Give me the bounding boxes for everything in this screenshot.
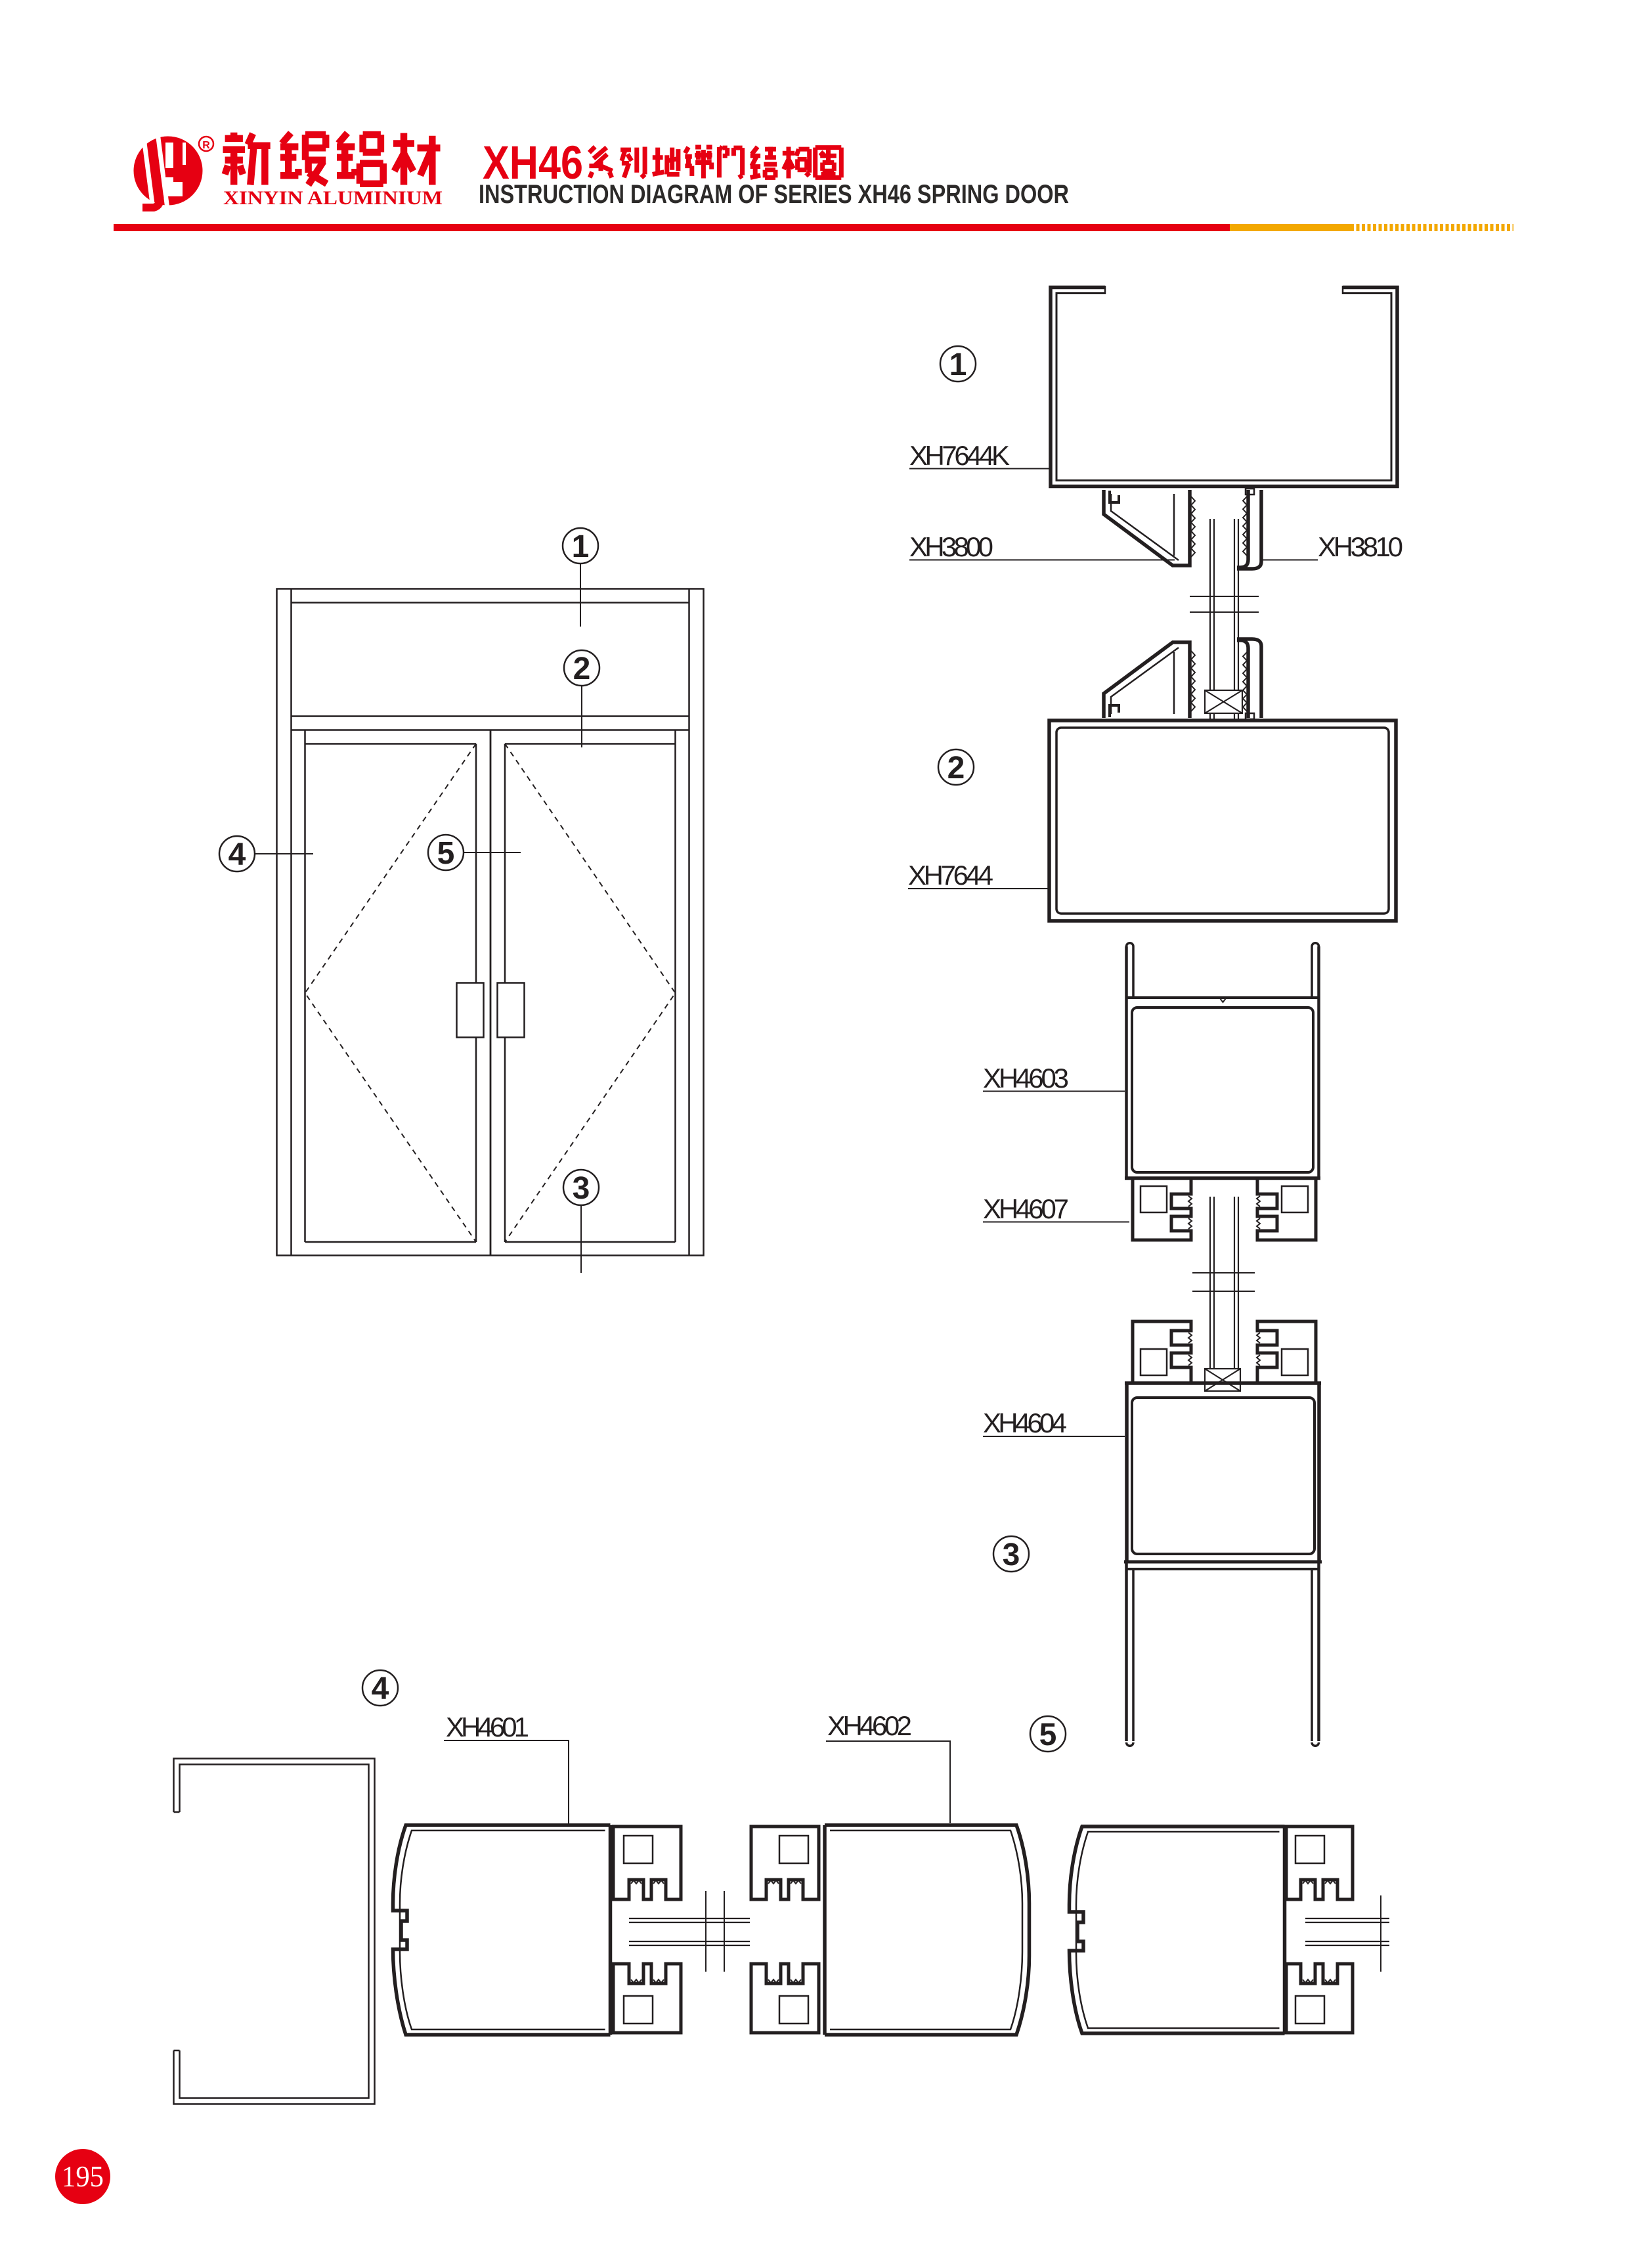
svg-text:2: 2 (573, 652, 591, 686)
svg-text:XH4601: XH4601 (446, 1712, 529, 1742)
svg-text:INSTRUCTION DIAGRAM OF SERIES: INSTRUCTION DIAGRAM OF SERIES XH46 SPRIN… (479, 180, 1069, 209)
svg-text:195: 195 (62, 2159, 104, 2193)
svg-text:XH3810: XH3810 (1318, 531, 1403, 562)
svg-text:XH3800: XH3800 (909, 531, 993, 562)
svg-text:1: 1 (572, 529, 590, 564)
svg-text:1: 1 (949, 347, 967, 382)
svg-text:3: 3 (573, 1171, 590, 1206)
svg-text:4: 4 (228, 837, 246, 872)
svg-text:XH4602: XH4602 (827, 1710, 912, 1741)
svg-text:R: R (202, 140, 210, 151)
svg-text:5: 5 (437, 836, 455, 871)
svg-text:XH7644K: XH7644K (909, 440, 1010, 471)
svg-text:XINYIN ALUMINIUM: XINYIN ALUMINIUM (223, 187, 443, 209)
svg-text:4: 4 (372, 1671, 389, 1706)
svg-text:XH4607: XH4607 (983, 1193, 1069, 1224)
svg-text:2: 2 (947, 751, 965, 786)
svg-text:XH4603: XH4603 (983, 1063, 1069, 1094)
svg-text:5: 5 (1039, 1717, 1057, 1752)
svg-text:XH7644: XH7644 (908, 860, 993, 891)
svg-text:3: 3 (1003, 1538, 1020, 1572)
svg-text:XH4604: XH4604 (983, 1407, 1067, 1438)
